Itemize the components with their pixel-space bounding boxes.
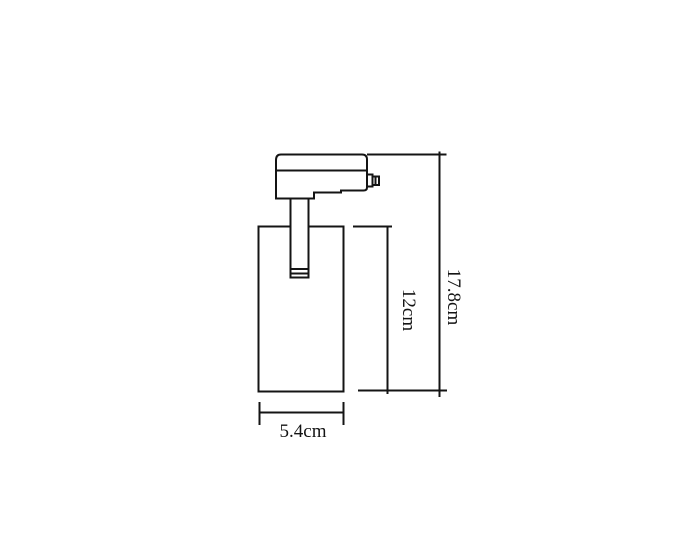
technical-drawing-canvas: 17.8cm 12cm 5.4cm	[0, 0, 692, 553]
body-height-label: 12cm	[398, 289, 419, 331]
body-width-label: 5.4cm	[280, 421, 327, 442]
spotlight-dimension-drawing: 17.8cm 12cm 5.4cm	[0, 0, 692, 553]
overall-height-label: 17.8cm	[443, 269, 464, 326]
stem-outline	[291, 199, 309, 278]
track-adapter-outline	[276, 155, 367, 199]
